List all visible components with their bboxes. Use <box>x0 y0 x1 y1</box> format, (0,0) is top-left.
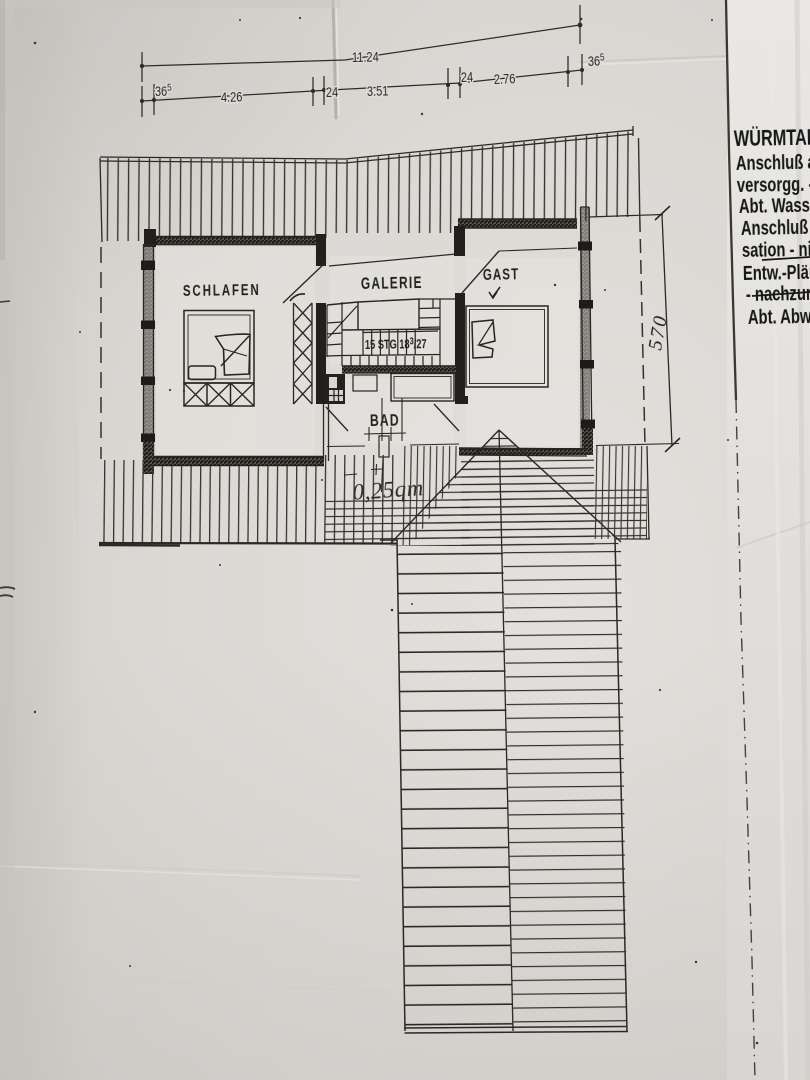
svg-text:24: 24 <box>461 70 474 86</box>
svg-text:11.24: 11.24 <box>352 49 379 65</box>
svg-text:Anschluß a. d: Anschluß a. d <box>736 150 810 174</box>
svg-text:24: 24 <box>326 85 339 101</box>
svg-text:WÜRMTAL-B: WÜRMTAL-B <box>734 124 810 152</box>
svg-text:Abt. Wasserv: Abt. Wasserv <box>739 193 810 217</box>
svg-text:Anschluß a. d: Anschluß a. d <box>741 215 810 239</box>
svg-text:Abt. Abwas: Abt. Abwas <box>748 304 810 328</box>
svg-text:SCHLAFEN: SCHLAFEN <box>183 280 261 299</box>
svg-text:2.76: 2.76 <box>494 71 516 87</box>
svg-text:BAD: BAD <box>370 412 400 431</box>
svg-text:4.26: 4.26 <box>221 89 243 105</box>
svg-text:GAST: GAST <box>483 264 520 283</box>
svg-text:3.51: 3.51 <box>367 83 389 99</box>
svg-text:GALERIE: GALERIE <box>361 274 423 293</box>
